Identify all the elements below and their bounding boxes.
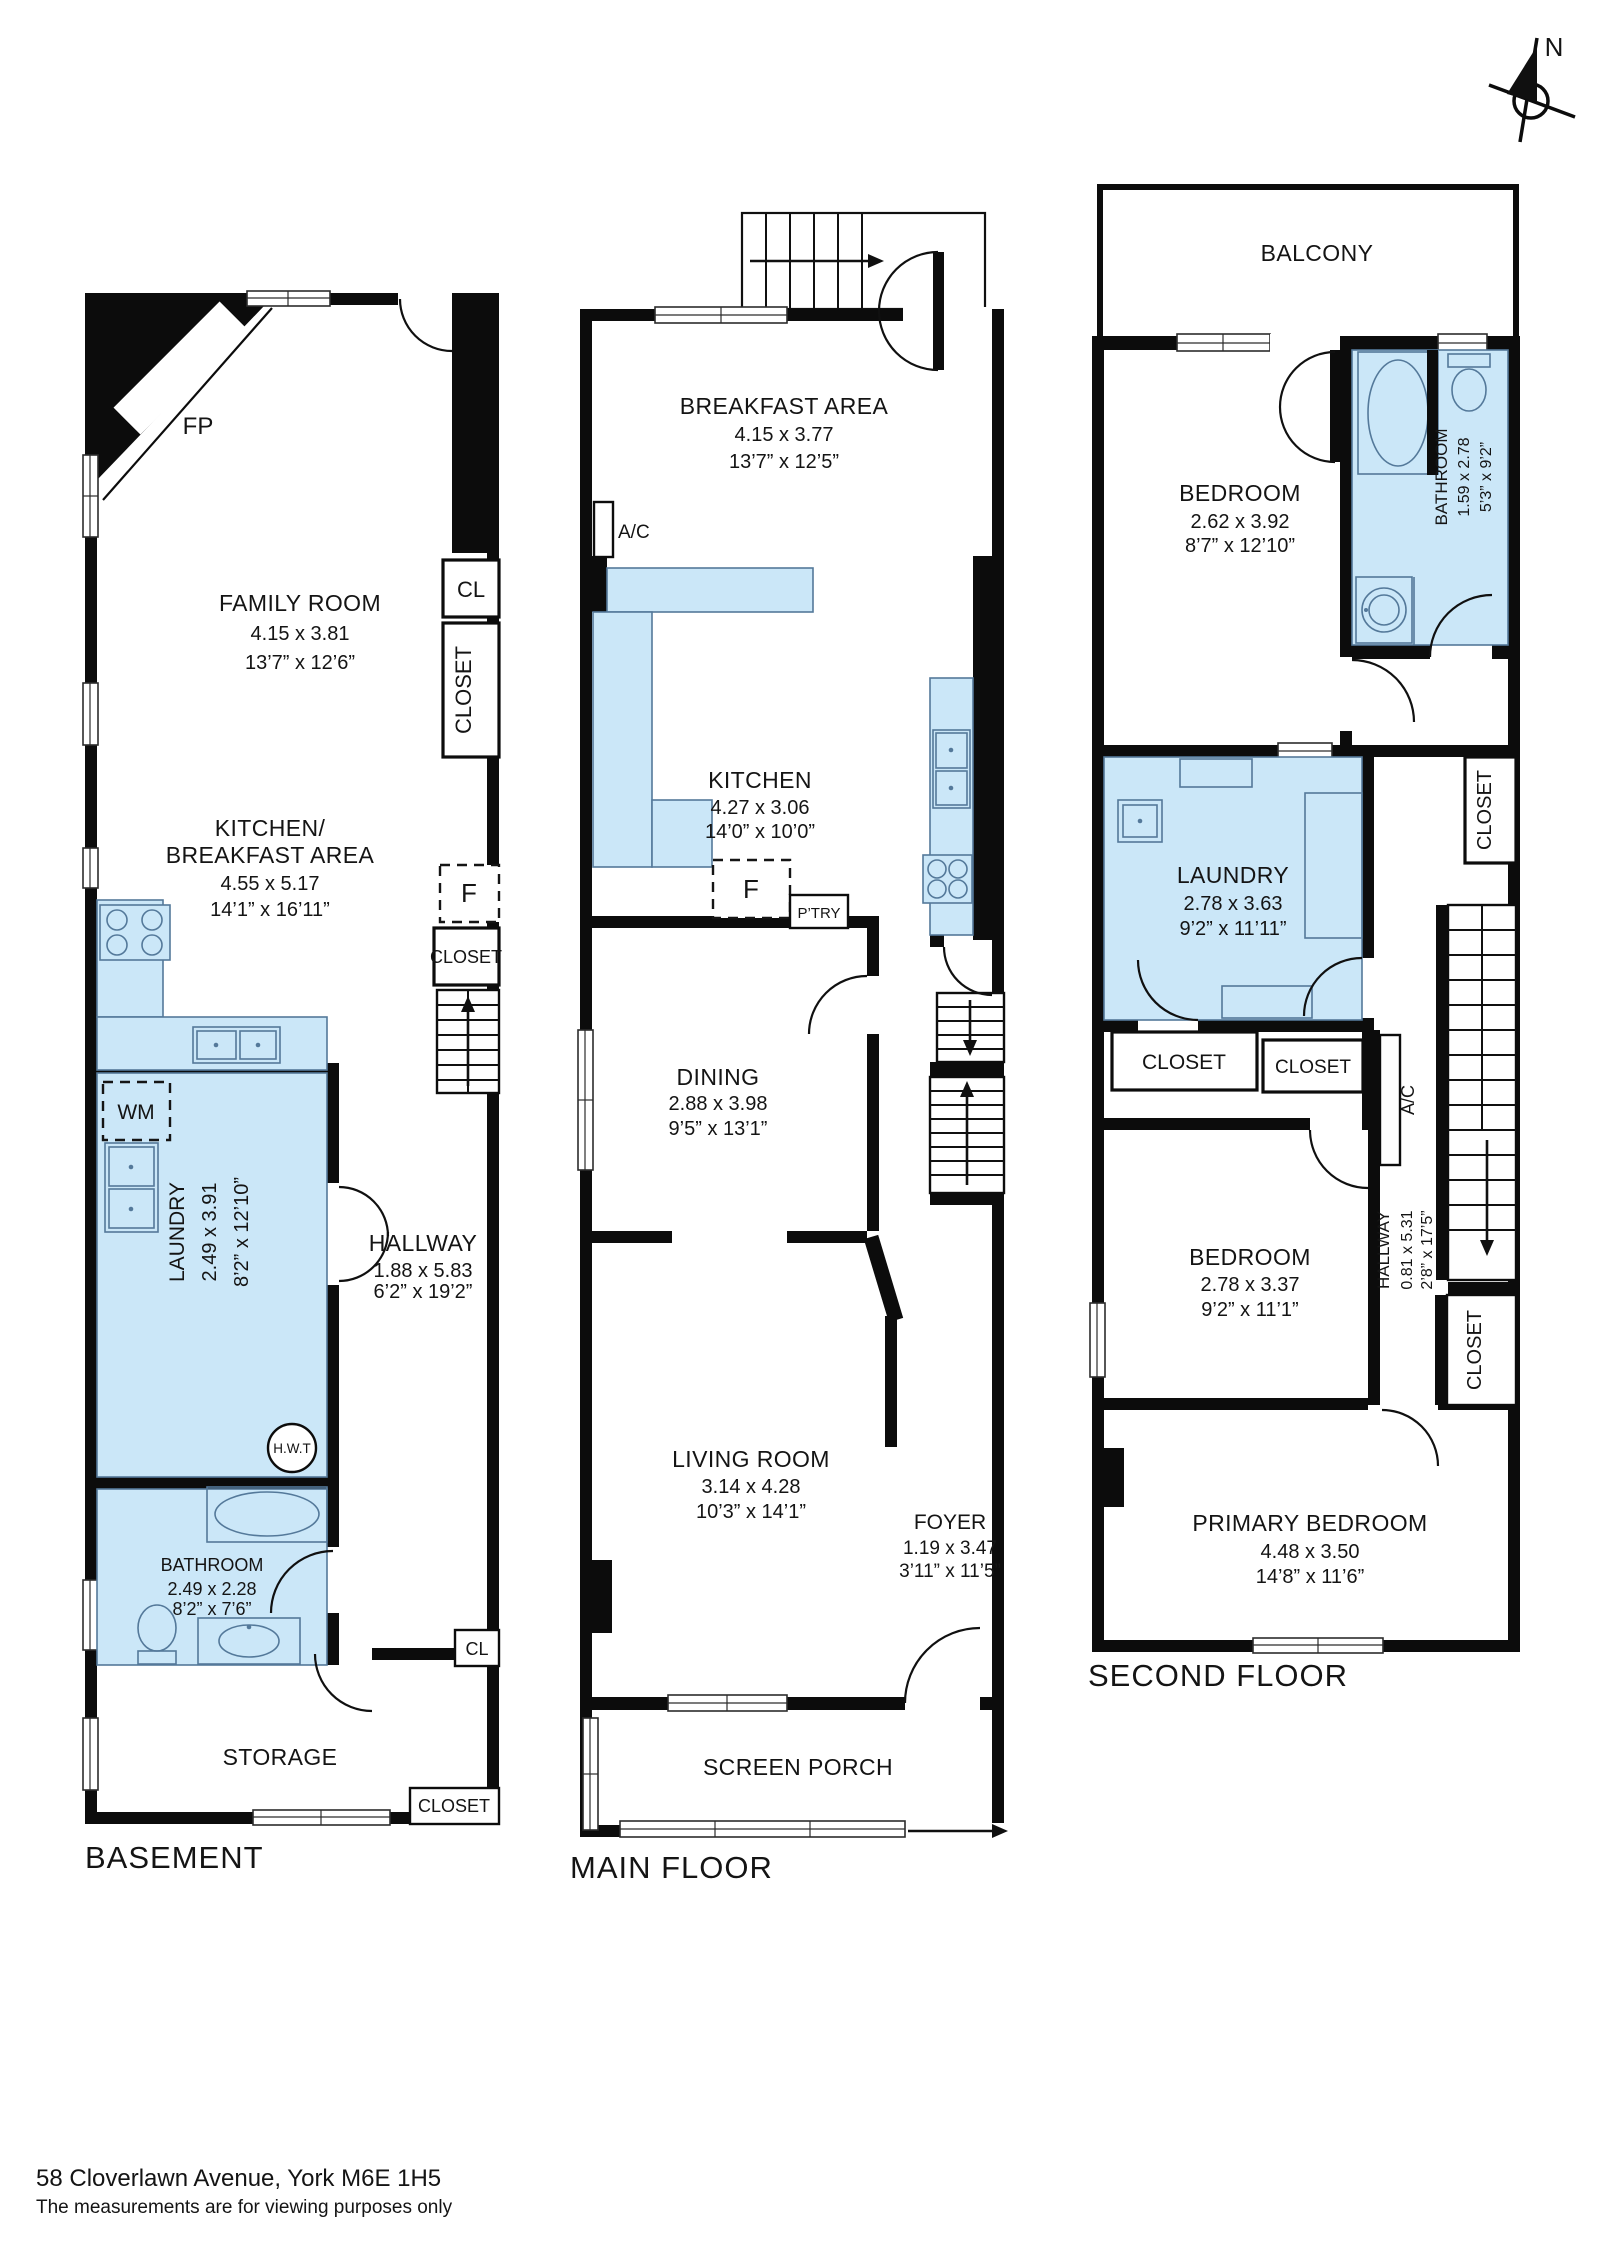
- svg-text:9’2” x 11’1”: 9’2” x 11’1”: [1201, 1299, 1298, 1321]
- svg-text:14’1” x 16’11”: 14’1” x 16’11”: [210, 899, 330, 921]
- svg-text:1.19 x 3.47: 1.19 x 3.47: [903, 1538, 997, 1559]
- fridge-label: F: [743, 874, 759, 904]
- fireplace-label: FP: [183, 413, 214, 440]
- window: [83, 1580, 98, 1650]
- foyer-label: FOYER 1.19 x 3.47 3’11” x 11’5”: [899, 1511, 1001, 1582]
- address-line: 58 Cloverlawn Avenue, York M6E 1H5: [36, 2165, 441, 2192]
- stairs-down: [1448, 905, 1516, 1280]
- bedroom-middle-label: BEDROOM 2.78 x 3.37 9’2” x 11’1”: [1189, 1244, 1311, 1321]
- svg-text:1.88 x 5.83: 1.88 x 5.83: [374, 1260, 473, 1282]
- closet-label: CLOSET: [430, 947, 502, 967]
- svg-text:PRIMARY BEDROOM: PRIMARY BEDROOM: [1192, 1510, 1427, 1536]
- closet-label: CLOSET: [418, 1796, 490, 1816]
- svg-text:3.14 x 4.28: 3.14 x 4.28: [702, 1476, 801, 1498]
- window: [1438, 334, 1487, 351]
- closet-label: CLOSET: [1474, 770, 1496, 850]
- svg-text:4.27 x 3.06: 4.27 x 3.06: [711, 797, 810, 819]
- kitchen-label: KITCHEN 4.27 x 3.06 14’0” x 10’0”: [705, 767, 815, 843]
- hwt-label: H.W.T: [273, 1441, 311, 1456]
- primary-bedroom-label: PRIMARY BEDROOM 4.48 x 3.50 14’8” x 11’6…: [1192, 1510, 1427, 1588]
- svg-text:8’2” x 7’6”: 8’2” x 7’6”: [172, 1599, 251, 1619]
- stairs-up: [437, 990, 499, 1093]
- svg-text:BEDROOM: BEDROOM: [1179, 480, 1301, 506]
- kitchen-counter: [97, 900, 327, 1070]
- breakfast-label: BREAKFAST AREA 4.15 x 3.77 13’7” x 12’5”: [680, 393, 889, 473]
- svg-text:0.81 x 5.31: 0.81 x 5.31: [1399, 1210, 1416, 1289]
- svg-text:LAUNDRY: LAUNDRY: [1177, 862, 1289, 888]
- dining-label: DINING 2.88 x 3.98 9’5” x 13’1”: [669, 1064, 768, 1140]
- svg-text:2.78 x 3.63: 2.78 x 3.63: [1184, 893, 1283, 915]
- svg-text:8’7” x 12’10”: 8’7” x 12’10”: [1185, 535, 1295, 557]
- svg-text:DINING: DINING: [677, 1064, 760, 1090]
- laundry-label: LAUNDRY 2.78 x 3.63 9’2” x 11’11”: [1177, 862, 1289, 940]
- svg-text:KITCHEN/: KITCHEN/: [215, 815, 326, 841]
- svg-text:14’8” x 11’6”: 14’8” x 11’6”: [1256, 1566, 1365, 1588]
- svg-text:FAMILY ROOM: FAMILY ROOM: [219, 590, 381, 616]
- svg-text:BEDROOM: BEDROOM: [1189, 1244, 1311, 1270]
- svg-text:3’11” x 11’5”: 3’11” x 11’5”: [899, 1561, 1001, 1582]
- window: [83, 683, 98, 745]
- svg-text:4.15 x 3.81: 4.15 x 3.81: [251, 623, 350, 645]
- disclaimer-line: The measurements are for viewing purpose…: [36, 2197, 453, 2218]
- svg-text:LAUNDRY: LAUNDRY: [166, 1182, 189, 1282]
- stairs-up: [930, 1077, 1004, 1193]
- hallway-label: HALLWAY 1.88 x 5.83 6’2” x 19’2”: [369, 1230, 477, 1303]
- basement-bathroom: [97, 1487, 327, 1665]
- window: [253, 1810, 390, 1825]
- window: [1253, 1638, 1383, 1653]
- window: [1177, 334, 1270, 351]
- svg-text:10’3” x 14’1”: 10’3” x 14’1”: [696, 1501, 806, 1523]
- svg-text:LIVING ROOM: LIVING ROOM: [672, 1446, 830, 1472]
- closet-label: CLOSET: [1275, 1057, 1351, 1078]
- svg-text:BREAKFAST AREA: BREAKFAST AREA: [680, 393, 889, 419]
- svg-text:2’8” x 17’5”: 2’8” x 17’5”: [1419, 1210, 1436, 1289]
- address-block: 58 Cloverlawn Avenue, York M6E 1H5 The m…: [36, 2165, 453, 2218]
- svg-text:4.15 x 3.77: 4.15 x 3.77: [735, 424, 834, 446]
- kitchen-label: KITCHEN/ BREAKFAST AREA 4.55 x 5.17 14’1…: [166, 815, 375, 921]
- svg-text:BATHROOM: BATHROOM: [1432, 429, 1451, 526]
- svg-text:13’7” x 12’6”: 13’7” x 12’6”: [245, 652, 355, 674]
- bathroom-label: BATHROOM 2.49 x 2.28 8’2” x 7’6”: [161, 1555, 264, 1619]
- ac-label: A/C: [1398, 1085, 1418, 1115]
- window: [83, 455, 98, 537]
- svg-text:8’2” x 12’10”: 8’2” x 12’10”: [231, 1177, 253, 1287]
- compass-rose: N: [1489, 32, 1575, 142]
- basement-title: BASEMENT: [85, 1840, 264, 1875]
- floor-plan-drawing: FP FAMILY ROOM 4.15 x 3.81 13’7” x 12’6”…: [0, 0, 1600, 2264]
- porch-label: SCREEN PORCH: [703, 1754, 893, 1780]
- svg-text:13’7” x 12’5”: 13’7” x 12’5”: [729, 451, 839, 473]
- family-room-label: FAMILY ROOM 4.15 x 3.81 13’7” x 12’6”: [219, 590, 381, 674]
- basement-plan: FP FAMILY ROOM 4.15 x 3.81 13’7” x 12’6”…: [83, 291, 502, 1875]
- window: [83, 1718, 98, 1790]
- svg-text:14’0” x 10’0”: 14’0” x 10’0”: [705, 821, 815, 843]
- living-label: LIVING ROOM 3.14 x 4.28 10’3” x 14’1”: [672, 1446, 830, 1523]
- window: [668, 1695, 787, 1711]
- entry-steps: [742, 213, 985, 309]
- north-label: N: [1545, 32, 1564, 62]
- svg-text:4.48 x 3.50: 4.48 x 3.50: [1261, 1541, 1360, 1563]
- fridge-label: F: [461, 878, 477, 908]
- svg-text:2.62 x 3.92: 2.62 x 3.92: [1191, 511, 1290, 533]
- bedroom-front-label: BEDROOM 2.62 x 3.92 8’7” x 12’10”: [1179, 480, 1301, 557]
- svg-text:5’3” x 9’2”: 5’3” x 9’2”: [1478, 442, 1495, 512]
- svg-text:1.59 x 2.78: 1.59 x 2.78: [1456, 437, 1473, 516]
- balcony-label: BALCONY: [1261, 240, 1374, 266]
- storage-label: STORAGE: [223, 1744, 338, 1770]
- window: [583, 1718, 598, 1830]
- stairs-down: [937, 993, 1004, 1062]
- svg-text:HALLWAY: HALLWAY: [369, 1230, 477, 1256]
- svg-text:9’5” x 13’1”: 9’5” x 13’1”: [669, 1118, 768, 1140]
- svg-text:2.88 x 3.98: 2.88 x 3.98: [669, 1093, 768, 1115]
- svg-text:6’2” x 19’2”: 6’2” x 19’2”: [374, 1281, 473, 1303]
- svg-text:9’2” x 11’11”: 9’2” x 11’11”: [1179, 918, 1286, 940]
- closet-label: CL: [457, 577, 485, 602]
- second-floor-title: SECOND FLOOR: [1088, 1658, 1348, 1693]
- window: [1090, 1303, 1105, 1377]
- svg-text:BREAKFAST AREA: BREAKFAST AREA: [166, 842, 375, 868]
- hallway-label: HALLWAY 0.81 x 5.31 2’8” x 17’5”: [1374, 1210, 1436, 1289]
- svg-text:FOYER: FOYER: [914, 1511, 986, 1534]
- svg-text:BATHROOM: BATHROOM: [161, 1555, 264, 1575]
- svg-text:HALLWAY: HALLWAY: [1374, 1211, 1393, 1289]
- window: [247, 291, 330, 306]
- svg-text:2.78 x 3.37: 2.78 x 3.37: [1201, 1274, 1300, 1296]
- svg-text:2.49 x 2.28: 2.49 x 2.28: [167, 1579, 256, 1599]
- closet-label: CLOSET: [451, 646, 476, 734]
- second-laundry: [1104, 757, 1362, 1020]
- washer-label: WM: [117, 1101, 154, 1124]
- main-floor-title: MAIN FLOOR: [570, 1850, 773, 1885]
- window: [83, 848, 98, 888]
- window: [578, 1030, 593, 1170]
- ac-label: A/C: [618, 522, 650, 543]
- bathroom-label: BATHROOM 1.59 x 2.78 5’3” x 9’2”: [1432, 429, 1495, 526]
- laundry-label: LAUNDRY 2.49 x 3.91 8’2” x 12’10”: [166, 1177, 253, 1287]
- closet-label: CLOSET: [1464, 1310, 1486, 1390]
- ac-unit: [594, 502, 613, 557]
- svg-text:2.49 x 3.91: 2.49 x 3.91: [199, 1183, 221, 1282]
- floor-plan-page: FP FAMILY ROOM 4.15 x 3.81 13’7” x 12’6”…: [0, 0, 1600, 2264]
- svg-text:4.55 x 5.17: 4.55 x 5.17: [221, 873, 320, 895]
- fireplace: [97, 302, 272, 500]
- second-floor-plan: BALCONY BEDROOM 2.62 x 3.92 8’7” x 12’10…: [1088, 187, 1520, 1693]
- window: [655, 307, 787, 323]
- pantry-label: P’TRY: [797, 905, 840, 922]
- ac-unit: [1380, 1035, 1400, 1165]
- main-floor-plan: BREAKFAST AREA 4.15 x 3.77 13’7” x 12’5”…: [570, 213, 1008, 1885]
- svg-text:KITCHEN: KITCHEN: [708, 767, 812, 793]
- closet-label: CL: [465, 1639, 488, 1659]
- closet-label: CLOSET: [1142, 1051, 1226, 1074]
